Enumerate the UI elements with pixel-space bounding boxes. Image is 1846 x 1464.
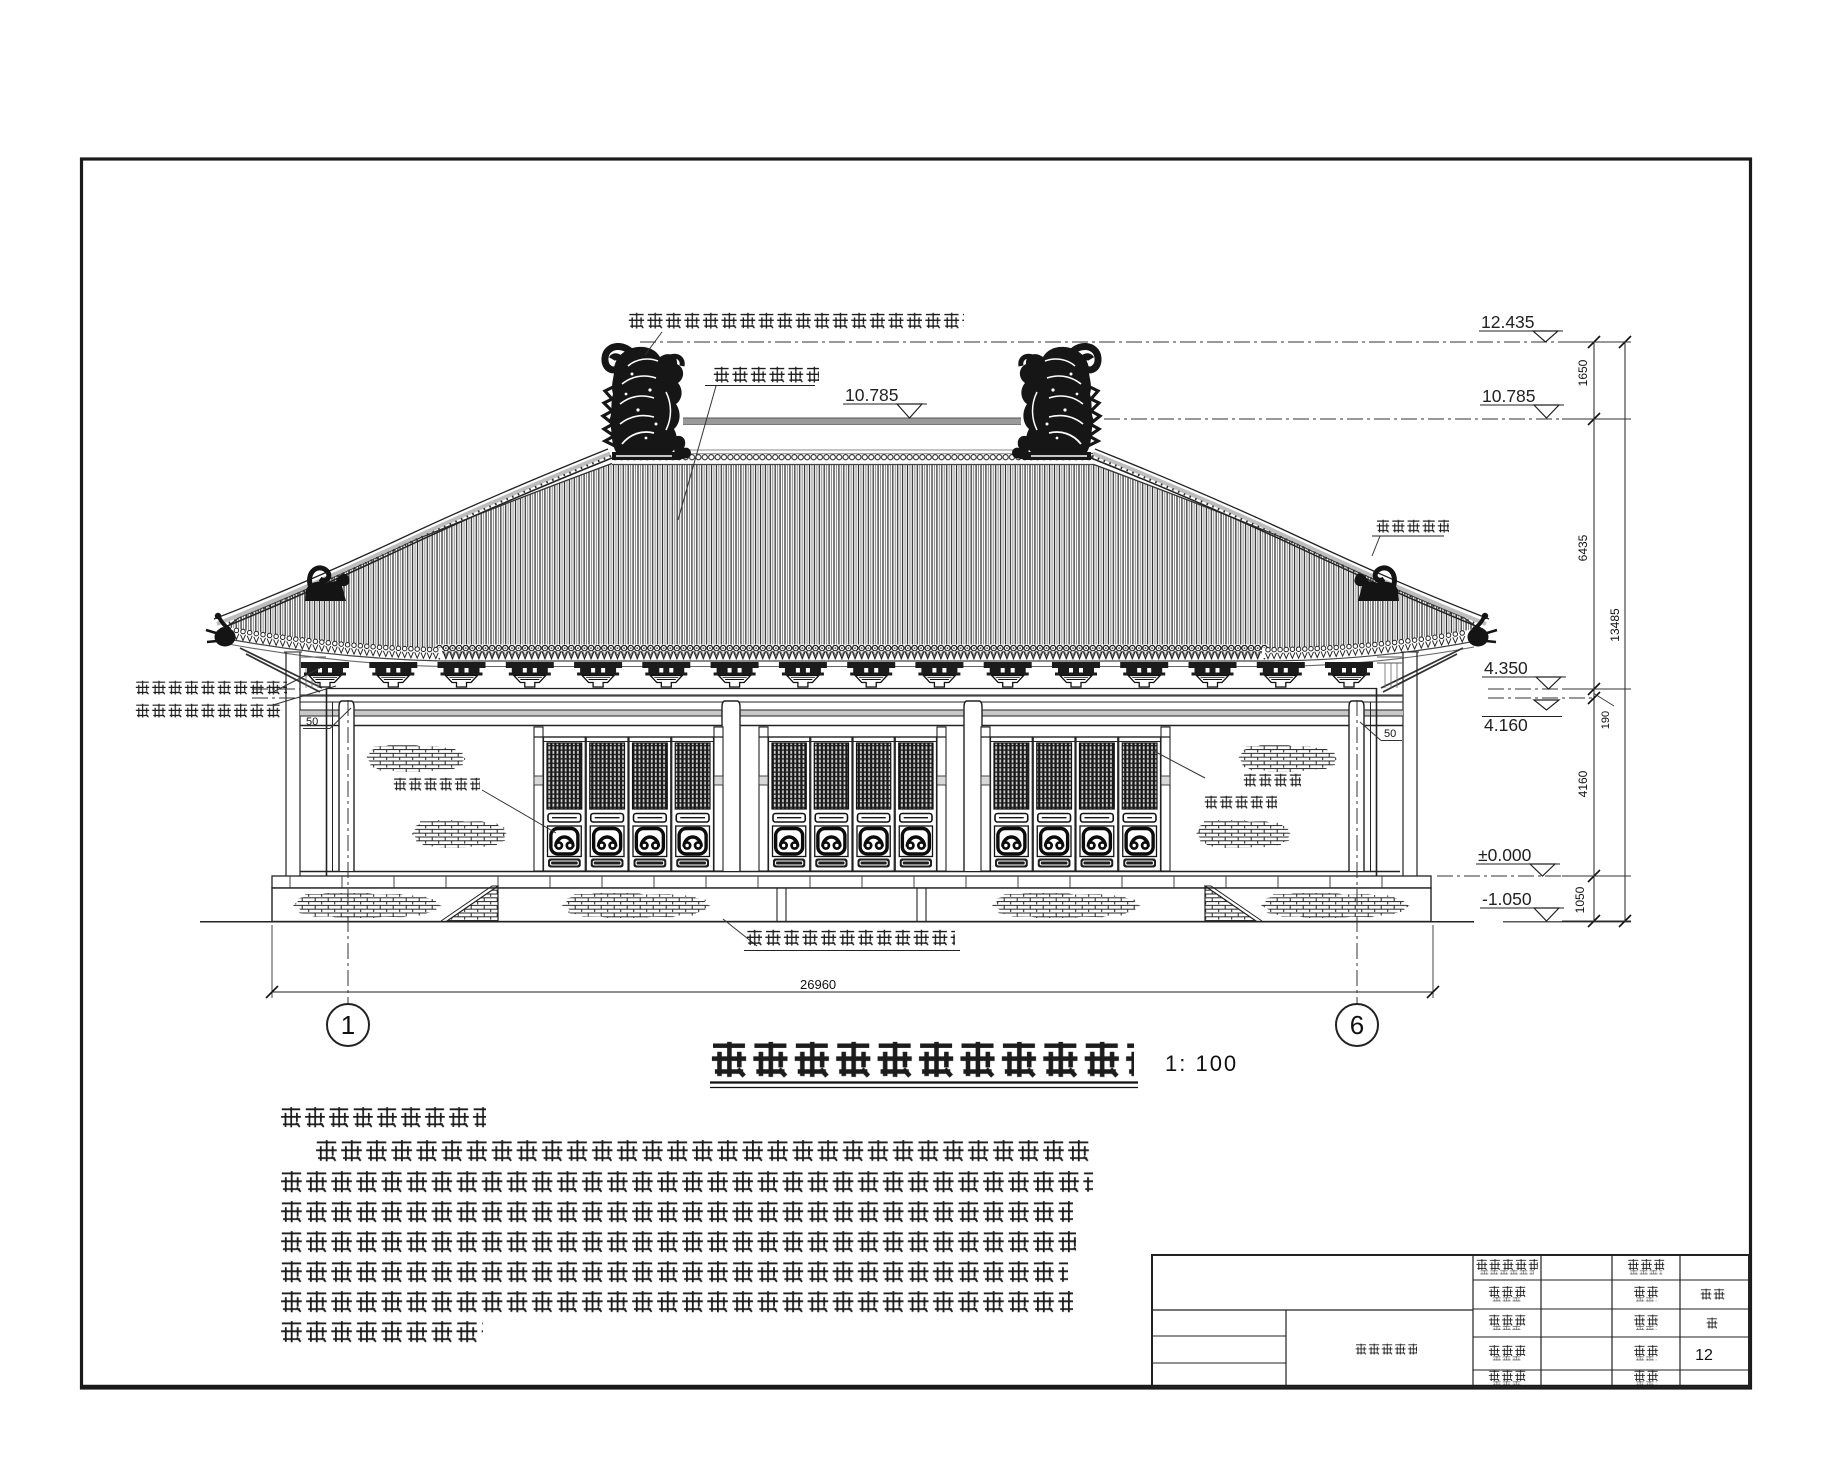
- svg-text:1: 100: 1: 100: [1165, 1051, 1238, 1076]
- svg-text:50: 50: [306, 716, 318, 728]
- svg-text:6435: 6435: [1576, 534, 1590, 561]
- svg-text:4.350: 4.350: [1484, 658, 1528, 678]
- svg-text:±0.000: ±0.000: [1478, 845, 1532, 865]
- svg-text:10.785: 10.785: [1482, 386, 1536, 406]
- svg-text:6: 6: [1350, 1010, 1364, 1040]
- svg-text:50: 50: [1384, 728, 1396, 740]
- svg-text:190: 190: [1600, 711, 1612, 729]
- svg-text:13485: 13485: [1608, 608, 1622, 642]
- svg-text:1650: 1650: [1576, 359, 1590, 386]
- svg-text:26960: 26960: [800, 977, 836, 992]
- svg-text:10.785: 10.785: [845, 385, 899, 405]
- svg-text:1: 1: [341, 1010, 355, 1040]
- svg-text:12.435: 12.435: [1481, 312, 1535, 332]
- svg-text:4.160: 4.160: [1484, 715, 1528, 735]
- svg-text:12: 12: [1695, 1347, 1713, 1364]
- svg-text:-1.050: -1.050: [1482, 889, 1532, 909]
- svg-text:4160: 4160: [1576, 770, 1590, 797]
- svg-text:1050: 1050: [1573, 886, 1587, 913]
